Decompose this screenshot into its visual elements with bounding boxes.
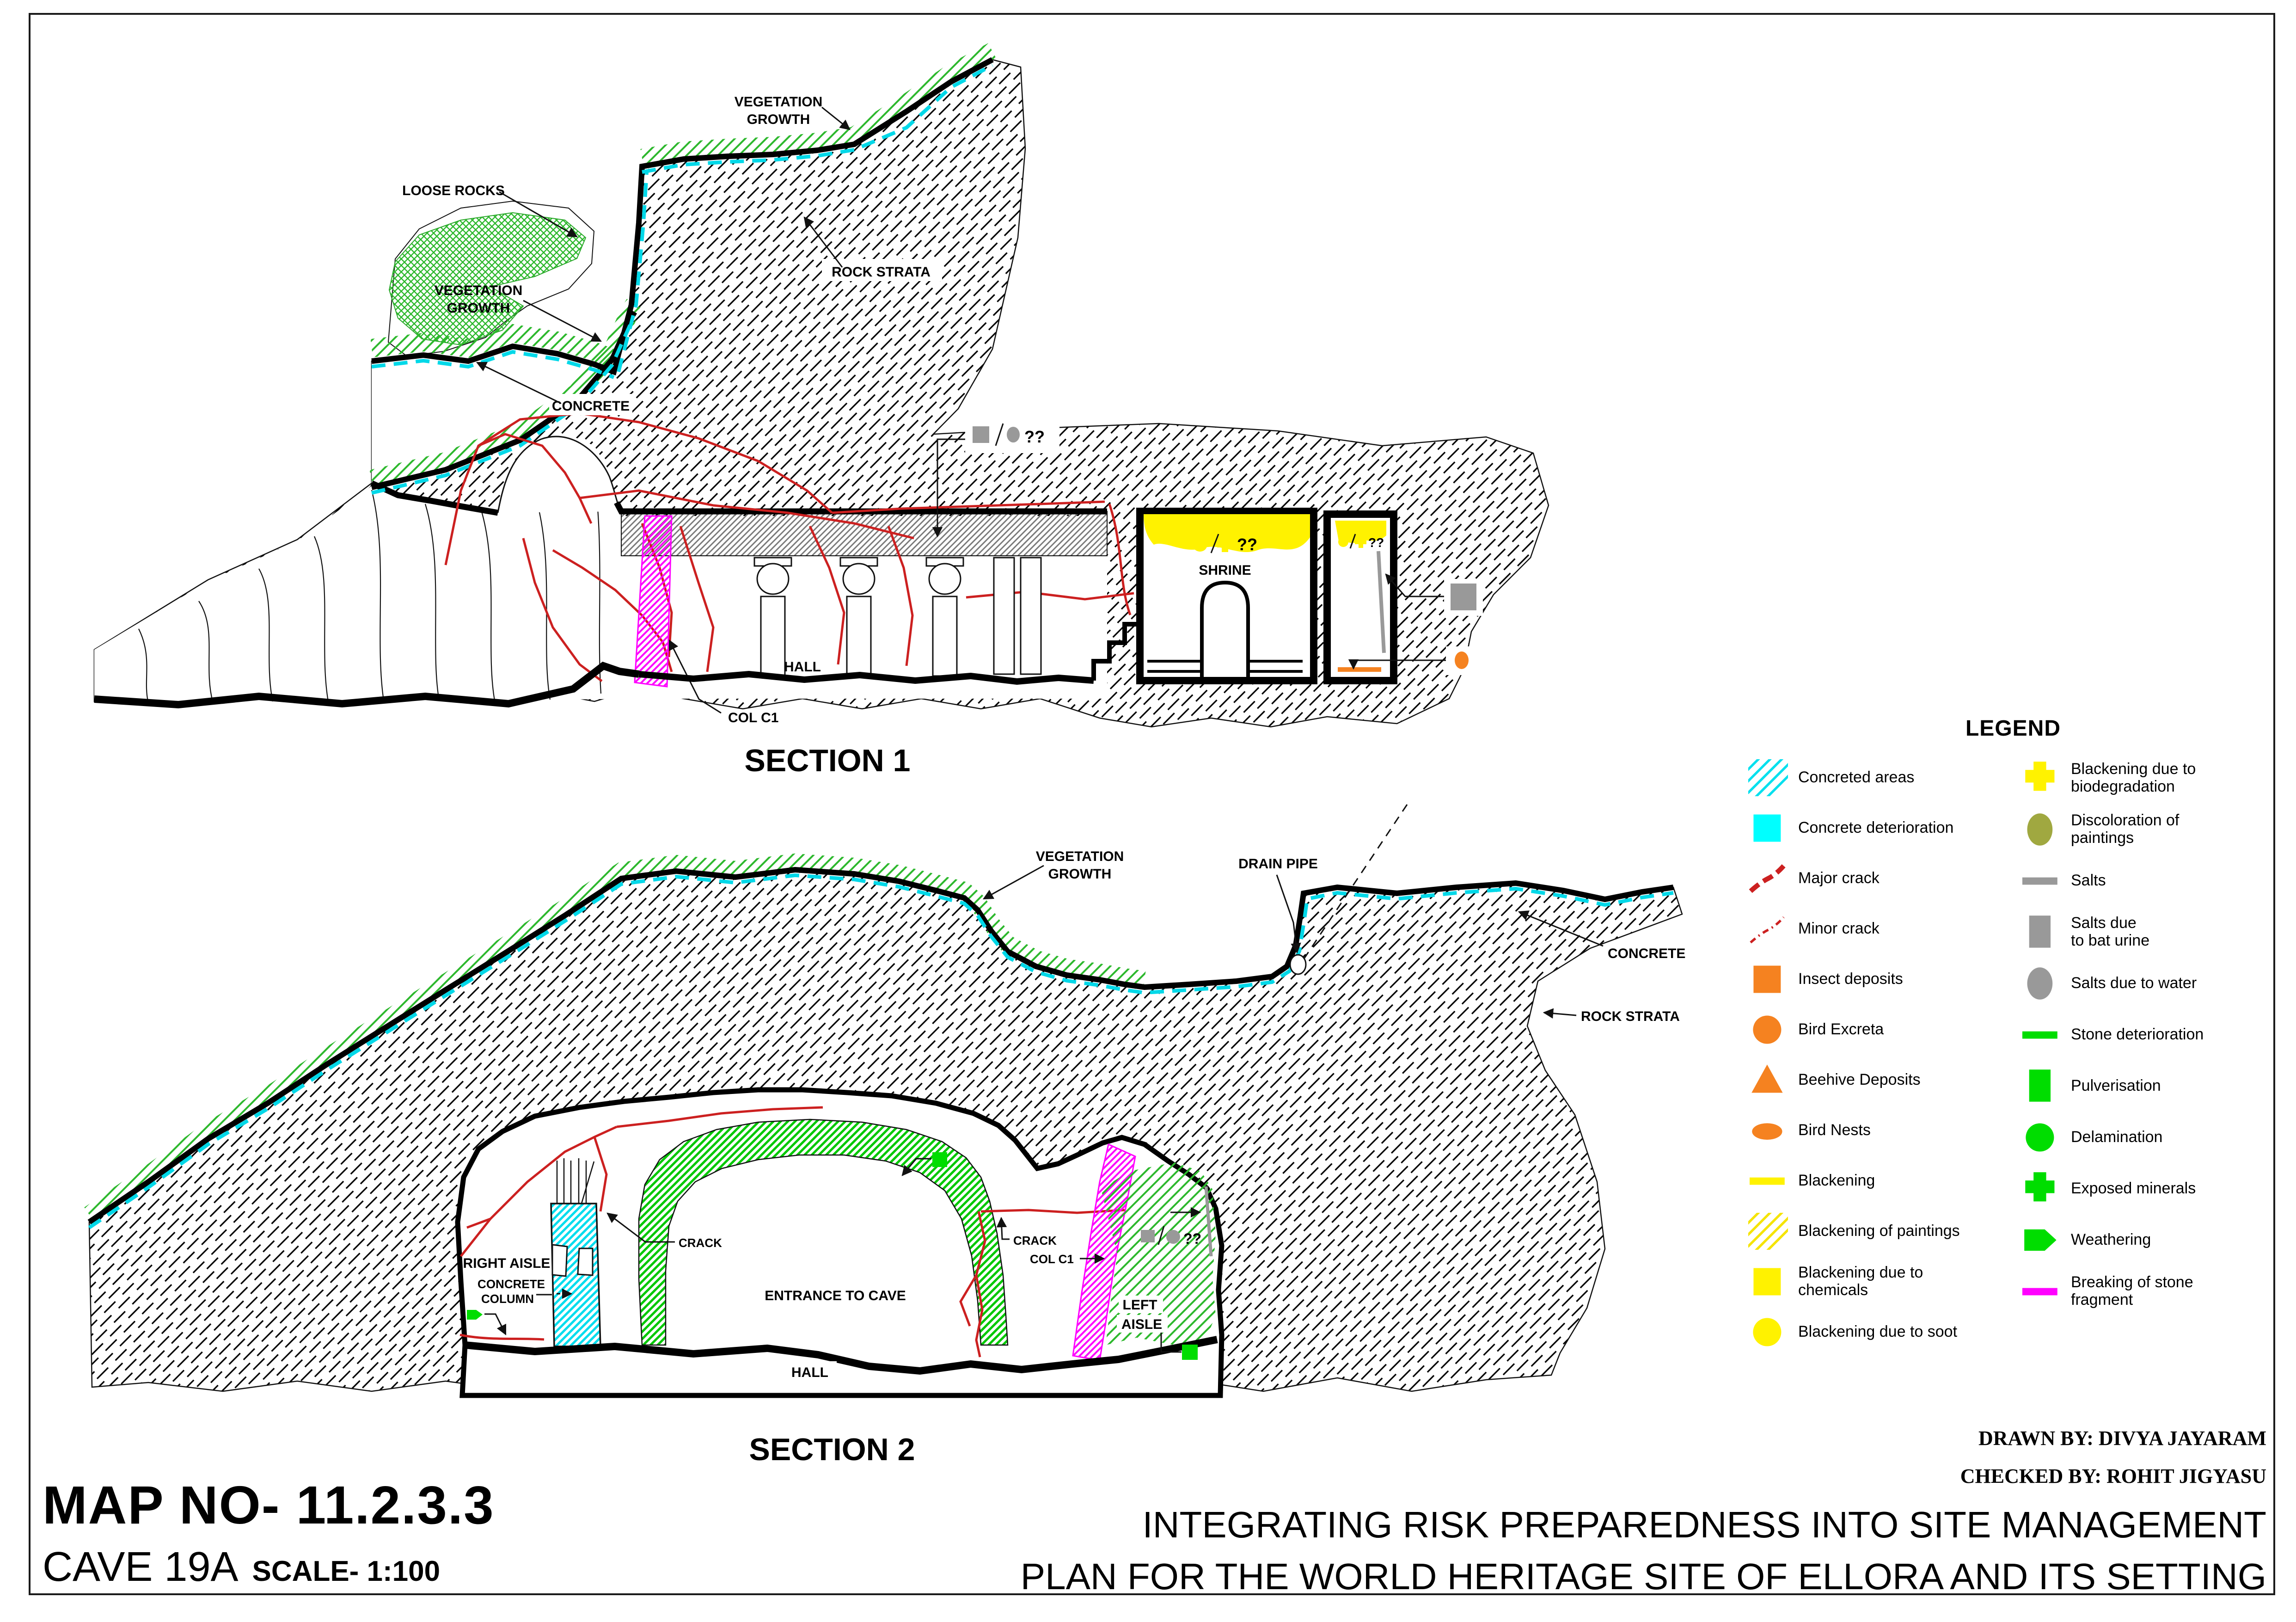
legend-item: Exposed minerals	[2021, 1163, 2278, 1214]
section2-drawing: ?? VEGETATION GROWTH DRAIN PIPE CONCRETE…	[89, 805, 1685, 1467]
col-c1-label: COL C1	[728, 710, 778, 725]
shrine-label: SHRINE	[1199, 563, 1251, 578]
legend-column-right: Blackening due to biodegradationDiscolor…	[2021, 752, 2278, 1357]
right-chamber: ??	[1327, 514, 1394, 681]
legend-swatch-icon	[1748, 961, 1788, 998]
legend-item-label: Exposed minerals	[2071, 1180, 2196, 1197]
legend-item: Blackening	[1748, 1155, 2021, 1206]
rock-strata-label: ROCK STRATA	[832, 264, 931, 280]
legend-item-label: Blackening	[1798, 1172, 1875, 1189]
drain-pipe	[1290, 955, 1306, 974]
credits-block: DRAWN BY: DIVYA JAYARAM CHECKED BY: ROHI…	[1960, 1419, 2266, 1495]
drawn-by: DRAWN BY: DIVYA JAYARAM	[1960, 1419, 2266, 1457]
legend-swatch-icon	[2021, 1222, 2061, 1259]
legend-item: Bird Nests	[1748, 1105, 2021, 1155]
legend-item-label: Discoloration of paintings	[2071, 812, 2179, 847]
unknown-mark: ??	[1183, 1230, 1201, 1247]
legend-item-label: Blackening due to biodegradation	[2071, 761, 2196, 795]
cave-scale-row: CAVE 19A SCALE- 1:100	[43, 1543, 440, 1591]
legend-swatch-icon	[1748, 1263, 1788, 1300]
vegetation-growth-label: VEGETATION	[1036, 849, 1124, 864]
legend-swatch-icon	[1748, 860, 1788, 897]
drawing-sheet: { "section1": { "title": "SECTION 1", "v…	[0, 0, 2296, 1622]
legend-item-label: Weathering	[2071, 1231, 2151, 1248]
legend-swatch-icon	[2021, 811, 2061, 848]
legend-swatch-icon	[2021, 914, 2061, 951]
legend-item: Breaking of stone fragment	[2021, 1266, 2278, 1317]
legend-item-label: Concreted areas	[1798, 769, 1914, 786]
legend-item: Insect deposits	[1748, 954, 2021, 1004]
section1-title: SECTION 1	[745, 743, 911, 778]
legend-swatch-icon	[1748, 1062, 1788, 1099]
col-c1-label: COL C1	[1030, 1252, 1074, 1266]
legend-item: Concrete deterioration	[1748, 803, 2021, 853]
unknown-mark: ??	[1024, 427, 1045, 446]
unknown-mark: ??	[1368, 535, 1384, 550]
legend-item-label: Bird Excreta	[1798, 1021, 1884, 1038]
legend-swatch-icon	[2021, 1170, 2061, 1207]
legend-item: Concreted areas	[1748, 752, 2021, 803]
legend-item: Salts due to bat urine	[2021, 906, 2278, 958]
legend-item-label: Pulverisation	[2071, 1077, 2161, 1094]
legend-swatch-icon	[1748, 1314, 1788, 1351]
rock-strata-label: ROCK STRATA	[1581, 1009, 1680, 1024]
legend-item-label: Bird Nests	[1798, 1122, 1871, 1139]
entrance-label: ENTRANCE TO CAVE	[765, 1288, 906, 1303]
legend-item: Bird Excreta	[1748, 1004, 2021, 1055]
legend-swatch-icon	[2021, 1119, 2061, 1156]
vegetation-growth-label: VEGETATION	[735, 94, 823, 110]
unknown-mark: ??	[1237, 535, 1257, 554]
legend-item-label: Salts due to water	[2071, 975, 2197, 992]
legend-item-label: Blackening of paintings	[1798, 1223, 1960, 1240]
legend-item: Discoloration of paintings	[2021, 804, 2278, 855]
legend-item-label: Breaking of stone fragment	[2071, 1274, 2193, 1309]
legend-swatch-icon	[2021, 965, 2061, 1002]
crack-label: CRACK	[1013, 1234, 1057, 1247]
legend-item-label: Stone deterioration	[2071, 1026, 2204, 1043]
door-jamb	[1021, 558, 1041, 674]
vegetation-growth-label: VEGETATION	[435, 283, 523, 298]
legend-item: Major crack	[1748, 853, 2021, 903]
legend-swatch-icon	[1748, 1112, 1788, 1149]
legend-item: Pulverisation	[2021, 1060, 2278, 1112]
bird-excreta-symbol	[1455, 651, 1469, 669]
svg-text:GROWTH: GROWTH	[747, 112, 810, 127]
legend-swatch-icon	[2021, 760, 2061, 797]
legend-item-label: Beehive Deposits	[1798, 1071, 1921, 1088]
legend-item: Delamination	[2021, 1112, 2278, 1163]
legend-item-label: Salts due to bat urine	[2071, 915, 2149, 949]
legend-item-label: Delamination	[2071, 1129, 2162, 1146]
main-title-line2: PLAN FOR THE WORLD HERITAGE SITE OF ELLO…	[1021, 1551, 2266, 1603]
map-number: MAP NO- 11.2.3.3	[43, 1474, 495, 1536]
legend-item-label: Salts	[2071, 872, 2106, 889]
svg-text:GROWTH: GROWTH	[1048, 866, 1112, 882]
legend-item: Stone deterioration	[2021, 1009, 2278, 1060]
concrete-label: CONCRETE	[1608, 946, 1685, 961]
drain-pipe-label: DRAIN PIPE	[1238, 856, 1318, 872]
legend-swatch-icon	[2021, 1016, 2061, 1053]
legend-item: Weathering	[2021, 1214, 2278, 1266]
legend: LEGEND Concreted areasConcrete deteriora…	[1748, 716, 2278, 1357]
legend-title: LEGEND	[1748, 716, 2278, 741]
main-title-line1: INTEGRATING RISK PREPAREDNESS INTO SITE …	[1021, 1499, 2266, 1551]
salts-bat-urine-symbol	[1451, 584, 1476, 610]
section2-title: SECTION 2	[749, 1432, 915, 1467]
legend-item: Salts	[2021, 855, 2278, 906]
legend-item-label: Minor crack	[1798, 920, 1880, 937]
legend-item-label: Concrete deterioration	[1798, 819, 1953, 836]
legend-swatch-icon	[2021, 1273, 2061, 1310]
ceiling-salts-band	[621, 511, 1107, 556]
legend-item-label: Major crack	[1798, 870, 1880, 887]
checked-by: CHECKED BY: ROHIT JIGYASU	[1960, 1457, 2266, 1495]
legend-item-label: Blackening due to chemicals	[1798, 1264, 1923, 1299]
legend-item: Blackening due to soot	[1748, 1307, 2021, 1357]
legend-item-label: Blackening due to soot	[1798, 1323, 1957, 1340]
legend-item: Blackening due to chemicals	[1748, 1256, 2021, 1307]
concrete-label: CONCRETE	[552, 399, 630, 414]
legend-item: Beehive Deposits	[1748, 1055, 2021, 1105]
legend-item: Blackening due to biodegradation	[2021, 752, 2278, 804]
main-title: INTEGRATING RISK PREPAREDNESS INTO SITE …	[1021, 1499, 2266, 1603]
hall-label: HALL	[784, 659, 821, 675]
legend-column-left: Concreted areasConcrete deteriorationMaj…	[1748, 752, 2021, 1357]
door-jamb	[994, 558, 1014, 674]
loose-rocks-label: LOOSE ROCKS	[402, 183, 505, 198]
legend-swatch-icon	[1748, 1213, 1788, 1250]
legend-swatch-icon	[1748, 1011, 1788, 1048]
legend-item: Salts due to water	[2021, 958, 2278, 1009]
legend-swatch-icon	[2021, 1068, 2061, 1105]
legend-swatch-icon	[2021, 862, 2061, 899]
legend-item: Blackening of paintings	[1748, 1206, 2021, 1256]
hall-label: HALL	[791, 1365, 828, 1380]
svg-text:COLUMN: COLUMN	[481, 1292, 534, 1306]
shrine-door	[1202, 583, 1248, 677]
shrine: ?? SHRINE	[1140, 511, 1314, 681]
left-aisle-label: LEFT	[1123, 1297, 1157, 1313]
legend-swatch-icon	[1748, 1162, 1788, 1199]
concrete-column-label: CONCRETE	[478, 1277, 545, 1291]
legend-item-label: Insect deposits	[1798, 971, 1903, 988]
legend-swatch-icon	[1748, 759, 1788, 796]
scale-label: SCALE- 1:100	[252, 1555, 441, 1588]
section1-drawing: COL C1 ?? SHRINE ??	[94, 51, 1549, 778]
legend-item: Minor crack	[1748, 903, 2021, 954]
crack-label: CRACK	[679, 1236, 722, 1250]
right-aisle-label: RIGHT AISLE	[463, 1256, 551, 1271]
svg-text:AISLE: AISLE	[1121, 1317, 1162, 1332]
legend-swatch-icon	[1748, 810, 1788, 847]
cave-name: CAVE 19A	[43, 1543, 239, 1591]
svg-text:GROWTH: GROWTH	[447, 301, 510, 316]
legend-swatch-icon	[1748, 910, 1788, 947]
